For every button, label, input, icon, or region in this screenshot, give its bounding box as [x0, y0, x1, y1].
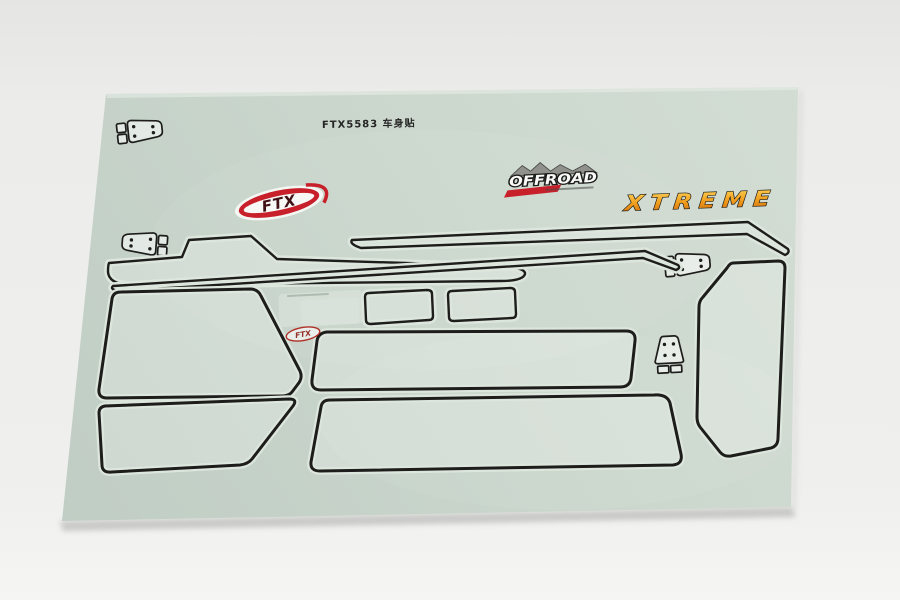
sunroof-decal-2: [448, 288, 516, 321]
side-window-decal-right: [697, 261, 785, 456]
rear-window-decal: [311, 395, 681, 471]
photo-stage: FTX5583 车身贴: [0, 0, 900, 600]
sunroof-decal-1: [365, 290, 433, 324]
windshield-decal: [312, 331, 635, 390]
watermark-patch: [278, 290, 364, 327]
